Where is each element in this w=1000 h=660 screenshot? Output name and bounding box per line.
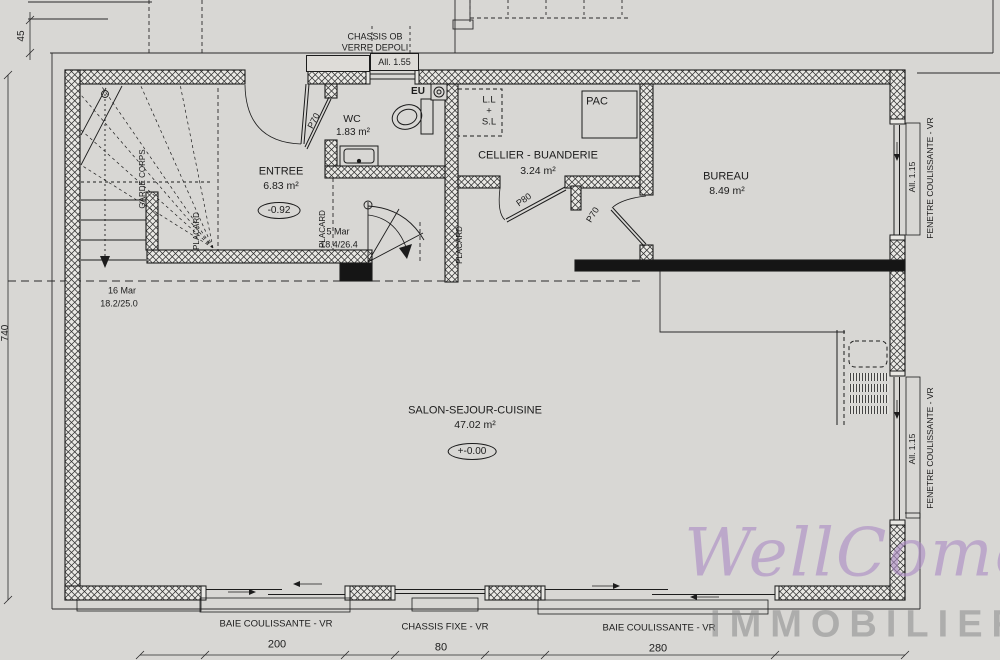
garde-corps-label: GARDE CORPS (139, 149, 147, 208)
wc-area-label: 1.83 m² (336, 128, 370, 138)
stair-winder-count-label: 5 Mar (326, 228, 349, 237)
baie-coulissante-label-2: BAIE COULISSANTE - VR (603, 623, 716, 633)
stair-main-count-label: 16 Mar (108, 287, 136, 296)
entree-area-label: 6.83 m² (263, 181, 299, 192)
sl-label: S.L (482, 117, 496, 127)
bureau-name-label: BUREAU (703, 172, 749, 183)
floor-plan: All. 1.55 CHASSIS OB VERRE DEPOLI EU ENT… (0, 0, 1000, 660)
salon-name-label: SALON-SEJOUR-CUISINE (408, 406, 542, 417)
allege-115-label-2: All. 1.15 (908, 434, 917, 465)
chassis-ob-label-line2: VERRE DEPOLI (342, 44, 409, 53)
door-header-box (306, 55, 370, 72)
stair-winder-ratio-label: 18.4/26.4 (320, 241, 358, 250)
chassis-ob-label-line1: CHASSIS OB (347, 33, 402, 42)
entree-level-badge: -0.92 (258, 201, 301, 217)
fenetre-coulissante-label-1: FENETRE COULISSANTE - VR (926, 117, 935, 238)
chassis-fixe-label: CHASSIS FIXE - VR (401, 622, 488, 632)
dim-45-label: 45 (17, 30, 27, 41)
placard-label-3: PLACARD (456, 226, 464, 264)
cellier-area-label: 3.24 m² (520, 166, 556, 177)
dim-280-label: 280 (649, 644, 667, 655)
entree-name-label: ENTREE (259, 167, 304, 178)
dim-200-label: 200 (268, 640, 286, 651)
fixtures-group (340, 84, 889, 425)
watermark-subtitle: IMMOBILIER (710, 604, 1000, 647)
cellier-name-label: CELLIER - BUANDERIE (478, 151, 598, 162)
allege-115-label-1: All. 1.15 (908, 162, 917, 193)
pac-label: PAC (586, 97, 608, 108)
bureau-area-label: 8.49 m² (709, 186, 745, 197)
salon-level-badge: +-0.00 (448, 442, 497, 458)
dim-80-label: 80 (435, 643, 447, 654)
salon-area-label: 47.02 m² (454, 420, 495, 431)
allege-155-label: All. 1.55 (378, 57, 411, 67)
plus-label: + (486, 106, 492, 116)
eu-label: EU (411, 87, 425, 97)
allege-155-box: All. 1.55 (370, 53, 419, 71)
ll-label: L.L (482, 95, 495, 105)
wc-name-label: WC (343, 114, 361, 125)
dim-740-label: 740 (1, 325, 11, 342)
placard-label-1: PLACARD (193, 212, 201, 250)
baie-coulissante-label-1: BAIE COULISSANTE - VR (220, 619, 333, 629)
watermark-brand: WellCome (684, 515, 1000, 592)
fenetre-coulissante-label-2: FENETRE COULISSANTE - VR (926, 387, 935, 508)
stair-main-ratio-label: 18.2/25.0 (100, 300, 138, 309)
